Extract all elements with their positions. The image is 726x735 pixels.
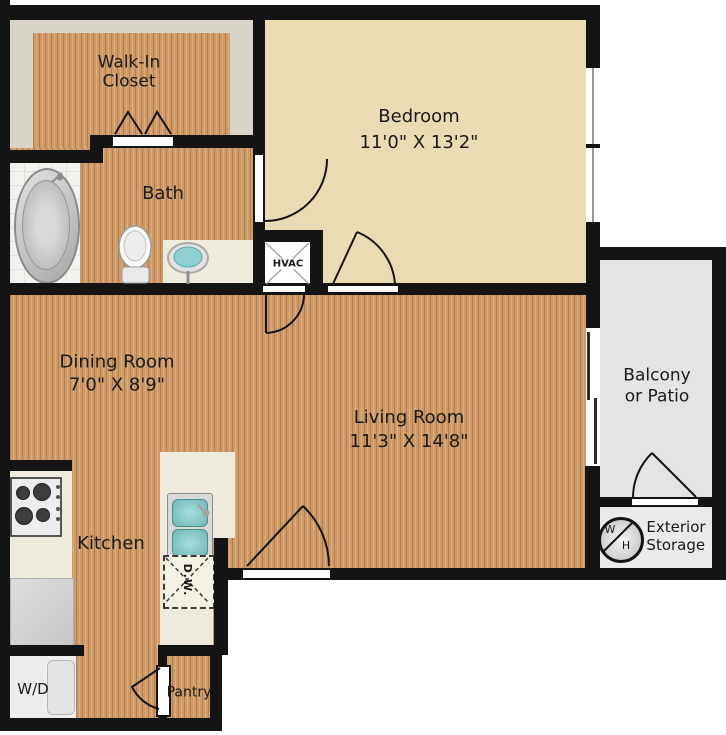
- wall: [253, 20, 265, 155]
- room-label-walk-in-closet: Walk-In Closet: [98, 53, 161, 90]
- wall: [0, 5, 600, 20]
- dining-dimensions: 7'0" X 8'9": [59, 376, 174, 396]
- washer-dryer: [47, 660, 75, 715]
- laundry-label: W/D: [17, 681, 48, 698]
- walk-in-closet-line1: Walk-In: [98, 53, 161, 72]
- living-dimensions: 11'3" X 14'8": [350, 432, 469, 452]
- wall: [90, 135, 103, 163]
- wall: [595, 247, 726, 260]
- room-label-pantry: Pantry: [167, 685, 212, 700]
- sink-basin: [172, 499, 208, 527]
- room-label-exterior-storage: Exterior Storage: [646, 519, 705, 553]
- living-name: Living Room: [350, 408, 469, 428]
- walk-in-closet-line2: Closet: [98, 72, 161, 91]
- floor-plan: Walk-In Closet Bath Bedroom 11'0" X 13'2…: [0, 0, 726, 735]
- bedroom-door-opening: [328, 284, 398, 294]
- bathtub-basin: [22, 180, 70, 270]
- hvac-door-opening: [263, 284, 305, 294]
- sliding-glass-door-panel: [594, 398, 597, 464]
- balcony-line1: Balcony: [623, 366, 690, 385]
- wall: [0, 0, 10, 731]
- wall: [0, 150, 103, 163]
- bedroom-bath-door-opening: [253, 155, 265, 222]
- room-label-kitchen: Kitchen: [77, 534, 145, 554]
- wall: [8, 645, 84, 656]
- balcony-storage-door-opening: [632, 497, 698, 507]
- water-heater-h: H: [622, 540, 630, 552]
- storage-line1: Exterior: [646, 519, 705, 536]
- front-door-opening: [243, 568, 330, 580]
- closet-bifold-opening: [113, 135, 173, 148]
- bedroom-dimensions: 11'0" X 13'2": [360, 133, 479, 153]
- wall: [0, 718, 222, 731]
- room-label-bedroom: Bedroom 11'0" X 13'2": [360, 107, 479, 153]
- bedroom-window: [588, 68, 598, 144]
- wall: [586, 295, 600, 328]
- wall: [585, 466, 600, 580]
- vanity-counter: [163, 240, 253, 284]
- water-heater-w: W: [605, 524, 616, 536]
- hvac-label: HVAC: [271, 259, 306, 270]
- room-label-living: Living Room 11'3" X 14'8": [350, 408, 469, 452]
- wall: [158, 645, 218, 656]
- wall: [585, 568, 726, 580]
- wall: [214, 538, 228, 655]
- bedroom-window: [588, 148, 598, 222]
- bedroom-name: Bedroom: [360, 107, 479, 127]
- dining-name: Dining Room: [59, 353, 174, 373]
- dishwasher-label: D.W.: [181, 564, 193, 597]
- room-label-dining: Dining Room 7'0" X 8'9": [59, 353, 174, 396]
- wall: [712, 247, 726, 578]
- sliding-glass-door-panel: [587, 332, 590, 400]
- storage-line2: Storage: [646, 537, 705, 554]
- balcony-line2: or Patio: [623, 387, 690, 406]
- room-label-bath: Bath: [142, 184, 184, 204]
- refrigerator: [10, 578, 74, 647]
- sink-basin: [172, 529, 208, 557]
- wall: [586, 5, 600, 68]
- room-label-balcony: Balcony or Patio: [623, 366, 690, 405]
- stove: [10, 477, 62, 537]
- wall: [8, 460, 72, 471]
